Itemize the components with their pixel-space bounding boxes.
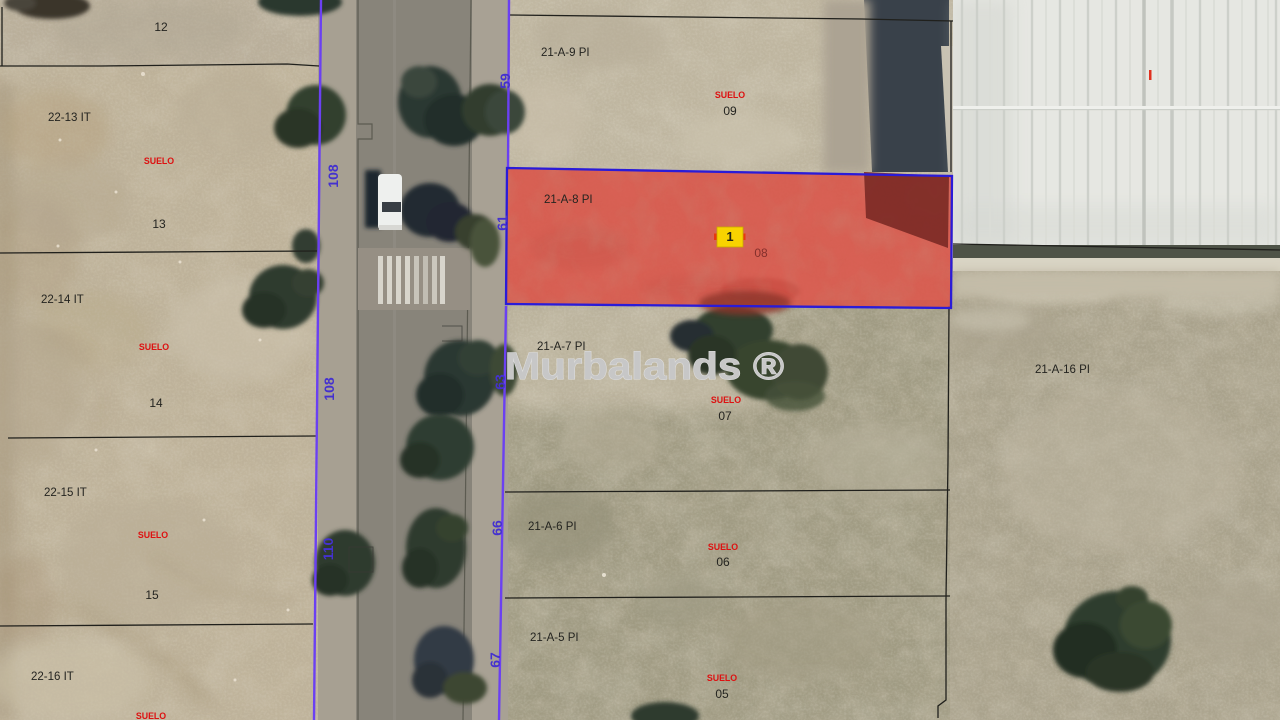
svg-text:22-14 IT: 22-14 IT xyxy=(41,294,84,306)
svg-text:SUELO: SUELO xyxy=(136,711,166,720)
svg-text:59: 59 xyxy=(497,73,513,89)
svg-text:67: 67 xyxy=(487,652,503,668)
svg-text:15: 15 xyxy=(145,588,159,602)
svg-text:1: 1 xyxy=(726,229,733,244)
svg-text:12: 12 xyxy=(154,20,168,34)
svg-text:SUELO: SUELO xyxy=(139,342,169,352)
svg-text:22-15 IT: 22-15 IT xyxy=(44,487,87,499)
svg-text:SUELO: SUELO xyxy=(144,156,174,166)
svg-text:SUELO: SUELO xyxy=(715,90,745,100)
svg-text:66: 66 xyxy=(489,520,505,536)
svg-text:06: 06 xyxy=(716,555,730,569)
svg-text:Murbalands ®: Murbalands ® xyxy=(505,346,784,388)
svg-text:14: 14 xyxy=(149,396,163,410)
svg-text:61: 61 xyxy=(494,215,510,231)
svg-text:108: 108 xyxy=(321,377,337,401)
svg-text:08: 08 xyxy=(754,246,768,260)
svg-text:22-16 IT: 22-16 IT xyxy=(31,671,74,683)
svg-text:21-A-16 PI: 21-A-16 PI xyxy=(1035,364,1090,376)
svg-text:SUELO: SUELO xyxy=(138,530,168,540)
svg-text:09: 09 xyxy=(723,104,737,118)
svg-text:22-13 IT: 22-13 IT xyxy=(48,112,91,124)
svg-text:110: 110 xyxy=(320,537,336,560)
svg-text:21-A-5 PI: 21-A-5 PI xyxy=(530,632,579,644)
svg-text:13: 13 xyxy=(152,217,166,231)
svg-text:108: 108 xyxy=(325,164,341,188)
svg-text:SUELO: SUELO xyxy=(708,542,738,552)
svg-text:05: 05 xyxy=(715,687,729,701)
svg-text:21-A-8 PI: 21-A-8 PI xyxy=(544,194,593,206)
svg-text:SUELO: SUELO xyxy=(707,673,737,683)
svg-text:21-A-9 PI: 21-A-9 PI xyxy=(541,47,590,59)
svg-text:07: 07 xyxy=(718,409,732,423)
svg-text:SUELO: SUELO xyxy=(711,395,741,405)
svg-text:21-A-6 PI: 21-A-6 PI xyxy=(528,521,577,533)
